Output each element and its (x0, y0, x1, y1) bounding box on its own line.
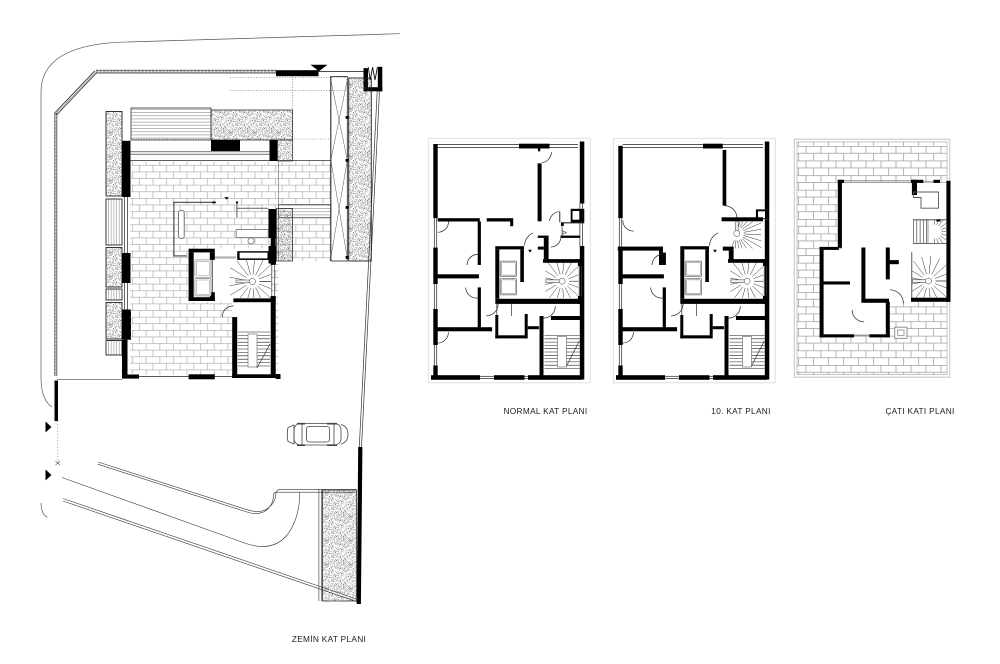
svg-text:ZEMİN KAT PLANI: ZEMİN KAT PLANI (292, 634, 366, 644)
svg-text:ÇATI KATI PLANI: ÇATI KATI PLANI (885, 406, 954, 416)
svg-text:NORMAL KAT PLANI: NORMAL KAT PLANI (504, 406, 588, 416)
svg-text:10. KAT PLANI: 10. KAT PLANI (711, 406, 770, 416)
